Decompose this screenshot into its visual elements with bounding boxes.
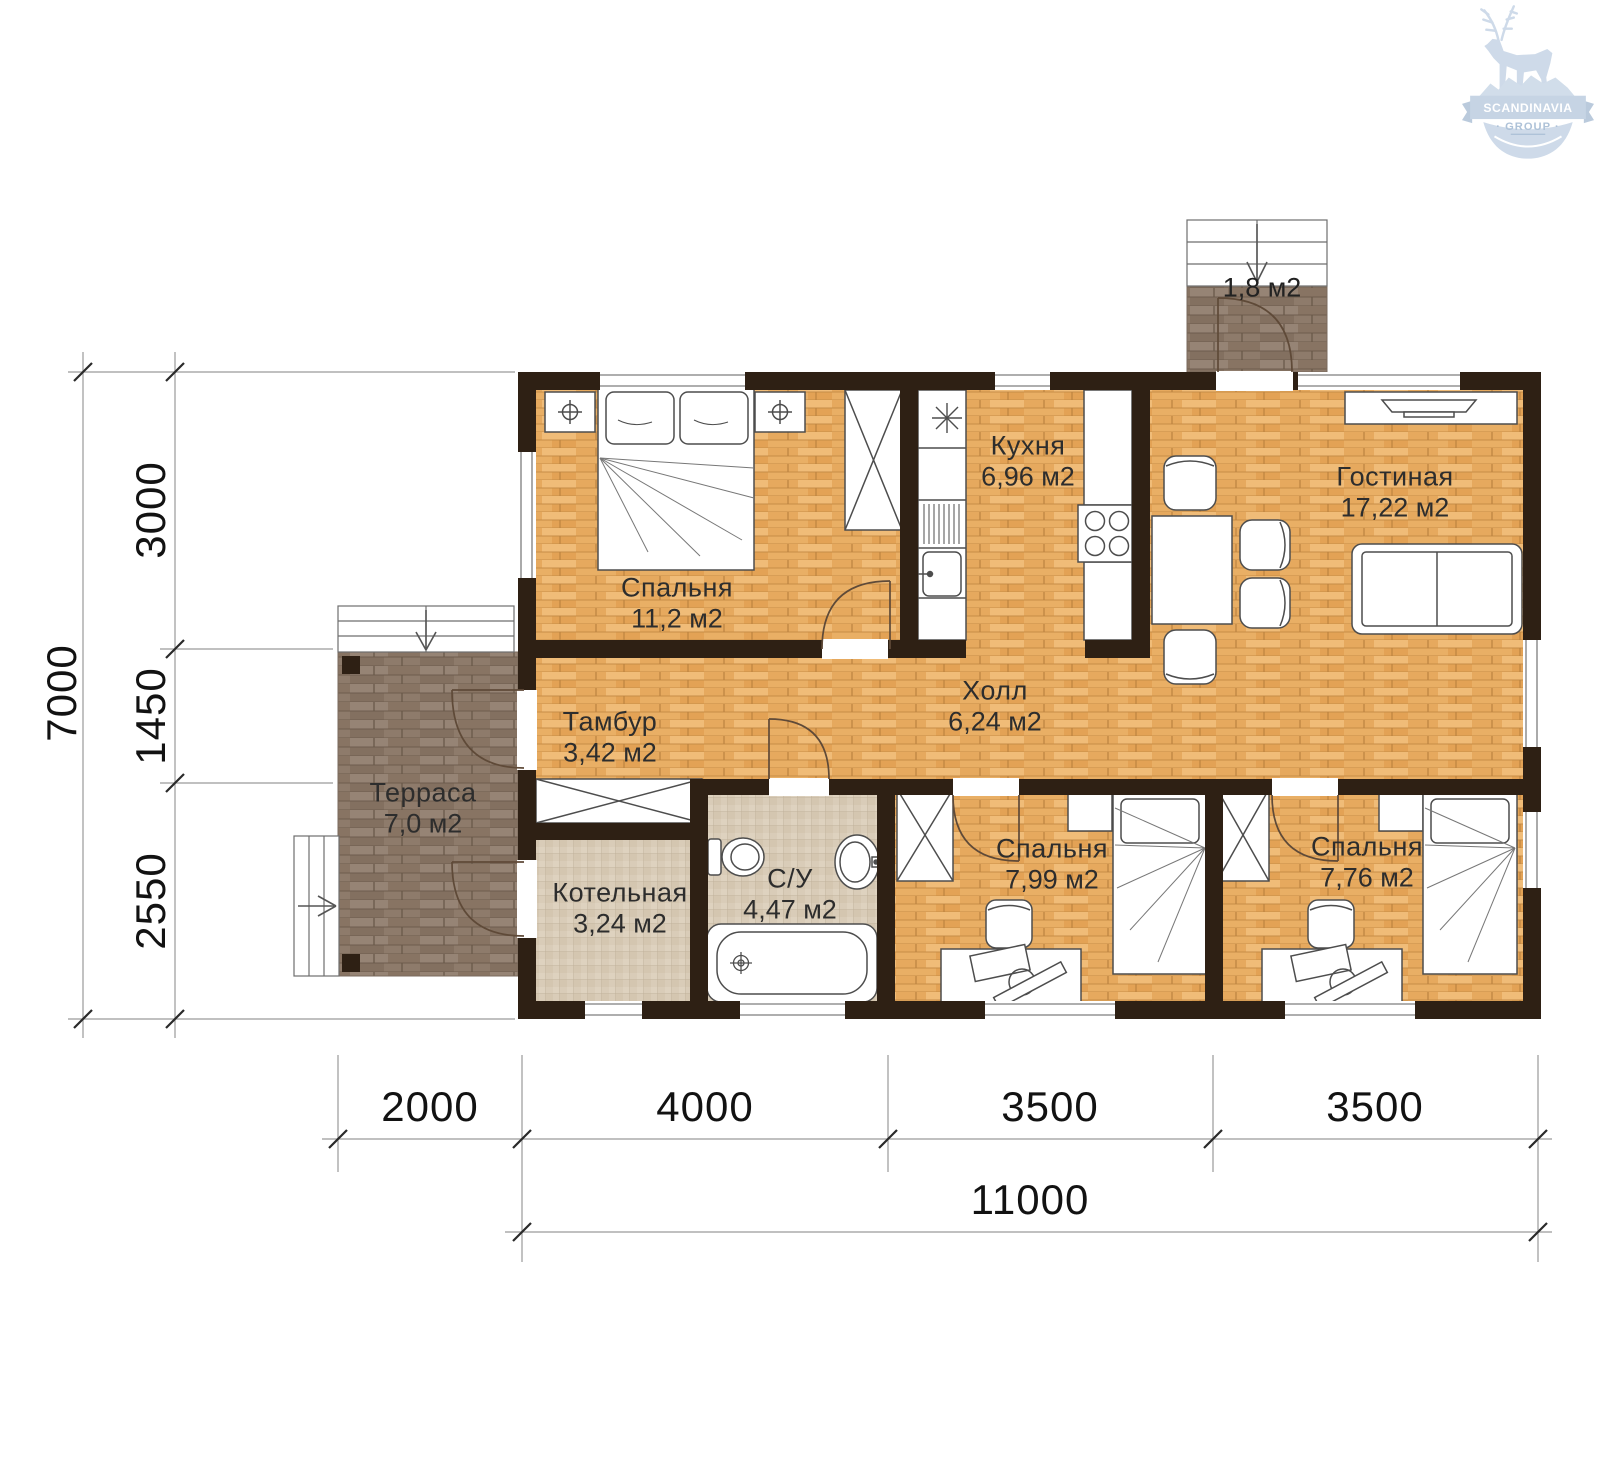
floor-plan-drawing	[0, 0, 1600, 1473]
room-name: Холл	[948, 676, 1042, 707]
room-label-terrace: Терраса 7,0 м2	[369, 778, 476, 841]
company-logo: SCANDINAVIA · GROUP ·	[1462, 2, 1594, 160]
logo-group-text: · GROUP ·	[1496, 121, 1559, 133]
logo-shield-bottom: · GROUP ·	[1483, 121, 1572, 158]
boiler-symbol-icon	[932, 403, 962, 433]
dim-bottom-3500-b: 3500	[1326, 1083, 1423, 1131]
terrace-post	[342, 954, 360, 972]
room-name: Терраса	[369, 778, 476, 809]
room-name: С/У	[743, 864, 837, 895]
desk-chair-icon	[986, 900, 1032, 948]
room-name: Кухня	[981, 431, 1075, 462]
dim-bottom-3500-a: 3500	[1001, 1083, 1098, 1131]
terrace-post	[342, 656, 360, 674]
wall-interior	[1205, 779, 1223, 1019]
room-label-bedroom-3: Спальня 7,76 м2	[1311, 832, 1423, 895]
room-name: Спальня	[621, 573, 733, 604]
room-label-kitchen: Кухня 6,96 м2	[981, 431, 1075, 494]
room-area: 6,96 м2	[981, 462, 1075, 493]
room-name: Гостиная	[1336, 462, 1453, 493]
room-area: 11,2 м2	[621, 604, 733, 635]
room-label-living-room: Гостиная 17,22 м2	[1336, 462, 1453, 525]
dim-left-2550: 2550	[127, 852, 175, 949]
room-label-boiler-room: Котельная 3,24 м2	[552, 878, 687, 941]
tv-icon	[1382, 400, 1476, 412]
room-name: Тамбур	[563, 707, 658, 738]
sink-icon	[918, 552, 961, 596]
dim-total-height: 7000	[38, 644, 86, 741]
sofa-icon	[1352, 544, 1522, 634]
wardrobe-icon	[845, 390, 902, 530]
single-bed-icon	[1423, 786, 1517, 974]
room-area: 7,0 м2	[369, 809, 476, 840]
logo-banner: SCANDINAVIA	[1462, 96, 1594, 123]
dim-left-3000: 3000	[127, 461, 175, 558]
wall-interior	[877, 779, 895, 1019]
room-label-bedroom-2: Спальня 7,99 м2	[996, 834, 1108, 897]
wall-interior	[1132, 390, 1150, 658]
room-area: 3,42 м2	[563, 738, 658, 769]
room-label-hall: Холл 6,24 м2	[948, 676, 1042, 739]
floor-plan-canvas: Спальня 11,2 м2 Кухня 6,96 м2 Гостиная 1…	[0, 0, 1600, 1473]
room-label-porch: 1,8 м2	[1223, 273, 1302, 304]
room-area: 7,99 м2	[996, 865, 1108, 896]
dim-bottom-4000: 4000	[656, 1083, 753, 1131]
room-name: Спальня	[996, 834, 1108, 865]
room-area: 4,47 м2	[743, 895, 837, 926]
wall-interior	[900, 390, 918, 658]
room-name: Спальня	[1311, 832, 1423, 863]
wall-interior	[536, 823, 708, 840]
terrace-stairs-icon	[338, 606, 514, 652]
deer-icon	[1476, 6, 1578, 99]
room-label-bathroom: С/У 4,47 м2	[743, 864, 837, 927]
bathtub-icon	[707, 924, 877, 1002]
wardrobe-icon	[1217, 789, 1269, 881]
wall-interior	[690, 779, 708, 1019]
dim-total-width: 11000	[971, 1176, 1090, 1224]
logo-brand-text: SCANDINAVIA	[1483, 101, 1572, 115]
room-area: 7,76 м2	[1311, 863, 1423, 894]
nightstand	[1379, 789, 1423, 831]
room-label-vestibule: Тамбур 3,42 м2	[563, 707, 658, 770]
dim-left-1450: 1450	[127, 667, 175, 764]
dim-bottom-2000: 2000	[381, 1083, 478, 1131]
stove-icon	[1078, 505, 1132, 562]
wardrobe-icon	[536, 779, 702, 823]
wardrobe-icon	[897, 789, 953, 881]
room-label-bedroom-1: Спальня 11,2 м2	[621, 573, 733, 636]
single-bed-icon	[1113, 786, 1207, 974]
terrace-side-stairs-icon	[294, 836, 339, 976]
room-name: Котельная	[552, 878, 687, 909]
room-area: 6,24 м2	[948, 707, 1042, 738]
nightstand	[1068, 789, 1112, 831]
tv-stand	[1345, 392, 1517, 424]
wall-interior	[518, 640, 966, 658]
desk-chair-icon	[1308, 900, 1354, 948]
room-area: 3,24 м2	[552, 909, 687, 940]
room-area: 17,22 м2	[1336, 493, 1453, 524]
